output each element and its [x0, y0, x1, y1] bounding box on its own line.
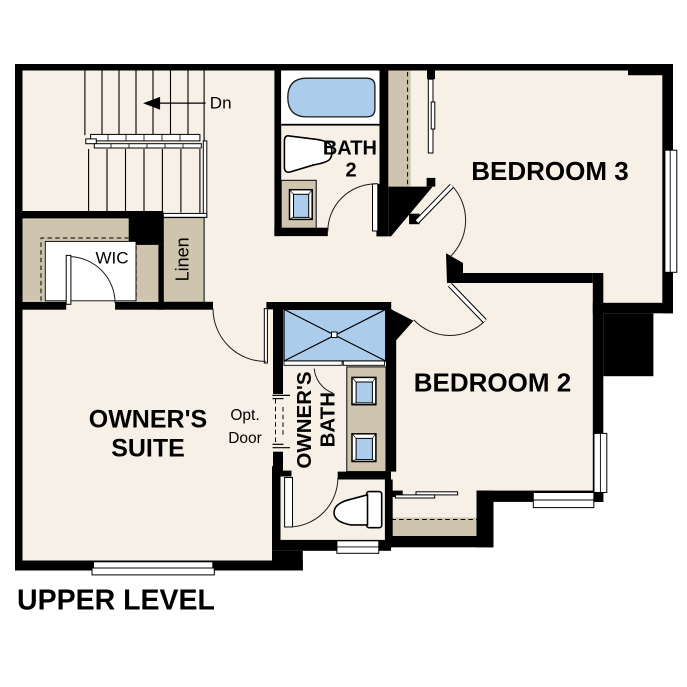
svg-text:BATH: BATH — [323, 138, 377, 160]
svg-text:BEDROOM 3: BEDROOM 3 — [471, 156, 628, 186]
svg-text:SUITE: SUITE — [111, 435, 185, 463]
svg-text:OWNER'S: OWNER'S — [293, 371, 316, 468]
svg-text:Door: Door — [228, 430, 262, 447]
svg-text:BATH: BATH — [316, 392, 339, 447]
svg-text:Opt.: Opt. — [230, 407, 259, 424]
svg-text:2: 2 — [345, 159, 356, 181]
svg-text:UPPER LEVEL: UPPER LEVEL — [17, 585, 215, 617]
svg-text:OWNER'S: OWNER'S — [89, 406, 207, 434]
svg-text:BEDROOM 2: BEDROOM 2 — [414, 368, 571, 398]
svg-text:Dn: Dn — [210, 94, 232, 113]
svg-text:Linen: Linen — [173, 237, 193, 281]
svg-text:WIC: WIC — [95, 249, 128, 268]
